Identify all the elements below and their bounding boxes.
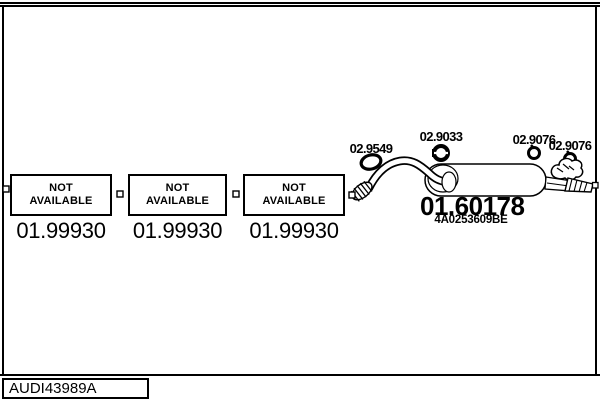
part-number-2[interactable]: 01.99930 [127, 218, 228, 244]
inlet-flange-icon [442, 172, 456, 192]
diagram-code-box: AUDI43989A [2, 378, 149, 399]
connector-square-icon [3, 186, 9, 192]
connector-square-icon [117, 191, 123, 197]
placeholder-box-2[interactable]: NOT AVAILABLE [128, 174, 227, 216]
placeholder-label: NOT AVAILABLE [255, 182, 333, 208]
muffler-oem-reference: 4A0253609BE [420, 214, 522, 226]
placeholder-box-1[interactable]: NOT AVAILABLE [10, 174, 112, 216]
placeholder-label: NOT AVAILABLE [22, 182, 100, 208]
exhaust-tip-drawing [565, 178, 593, 192]
gasket-part-label[interactable]: 02.9549 [346, 141, 396, 156]
diagram-code: AUDI43989A [9, 380, 97, 397]
part-number-1[interactable]: 01.99930 [11, 218, 111, 244]
clamp-rear-part-label[interactable]: 02.9076 [545, 138, 595, 153]
connector-square-icon [349, 192, 355, 198]
hanger-mount-icon [551, 158, 582, 179]
connector-square-icon [593, 183, 599, 189]
connector-square-icon [233, 191, 239, 197]
clamp-mid-icon [529, 145, 540, 159]
clamp-front-part-label[interactable]: 02.9033 [416, 129, 466, 144]
clamp-front-icon [432, 146, 448, 160]
placeholder-label: NOT AVAILABLE [139, 182, 217, 208]
parts-diagram-canvas: NOT AVAILABLE NOT AVAILABLE NOT AVAILABL… [0, 0, 600, 400]
part-number-3[interactable]: 01.99930 [243, 218, 345, 244]
placeholder-box-3[interactable]: NOT AVAILABLE [243, 174, 345, 216]
